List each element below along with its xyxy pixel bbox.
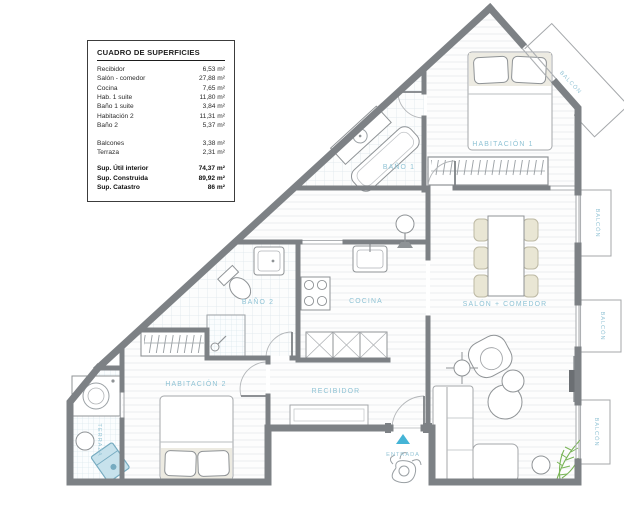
label-cocina: COCINA [349, 298, 383, 305]
label-habitacion2: HABITACIÓN 2 [165, 379, 226, 388]
wardrobe-habitacion2 [141, 331, 207, 356]
shower [207, 315, 245, 356]
console-table [290, 405, 368, 425]
balcony-label: BALCÓN [599, 311, 606, 340]
balcony-label: BALCÓN [594, 208, 601, 237]
label-terraza: TERRAZA [96, 423, 102, 456]
dining-set [474, 216, 538, 297]
table-row: Terraza2,31 m² [97, 148, 225, 157]
balcony-right-lower: BALCÓN [579, 400, 610, 464]
bed-habitacion2 [160, 396, 233, 480]
wardrobe-habitacion1 [428, 157, 548, 185]
dining-chair [523, 275, 538, 297]
bed-habitacion1 [468, 52, 552, 150]
surface-table-title: CUADRO DE SUPERFICIES [97, 48, 225, 61]
dining-chair [474, 247, 489, 269]
dining-chair [474, 275, 489, 297]
table-row: Recibidor6,53 m² [97, 65, 225, 74]
balcony-label: BALCÓN [593, 417, 600, 446]
table-row: Hab. 1 suite11,80 m² [97, 93, 225, 102]
table-row: Baño 1 suite3,84 m² [97, 102, 225, 111]
surface-table: CUADRO DE SUPERFICIES Recibidor6,53 m² S… [87, 40, 235, 202]
entrance-arrow-icon [396, 434, 410, 444]
table-row: Habitación 211,31 m² [97, 112, 225, 121]
label-habitacion1: HABITACIÓN 1 [472, 139, 533, 148]
terrace-table [76, 432, 94, 450]
label-recibidor: RECIBIDOR [312, 388, 361, 395]
side-table [532, 456, 550, 474]
balcony-right-middle: BALCÓN [579, 300, 621, 352]
table-row: Cocina7,65 m² [97, 84, 225, 93]
label-salon-comedor: SALÓN + COMEDOR [463, 299, 547, 308]
table-row-total: Sup. Catastro86 m² [97, 183, 225, 192]
label-bano2: BAÑO 2 [242, 297, 274, 306]
table-row: Balcones3,38 m² [97, 139, 225, 148]
sofa-chaise [473, 444, 518, 482]
label-bano1: BAÑO 1 [383, 162, 415, 171]
kitchen-cabinets [306, 332, 387, 358]
dining-chair [523, 247, 538, 269]
dining-table [488, 216, 524, 296]
table-row-total: Sup. Útil interior74,37 m² [97, 164, 225, 173]
table-row-total: Sup. Construida89,92 m² [97, 174, 225, 183]
entrance-label: ENTRADA [386, 452, 420, 458]
floor-plan-page: BALCÓN BALCÓN BALCÓN BALCÓN [0, 0, 624, 505]
balcony-right-upper: BALCÓN [579, 190, 611, 256]
coffee-table-small [502, 370, 524, 392]
table-row: Salón - comedor27,88 m² [97, 74, 225, 83]
dining-chair [523, 219, 538, 241]
entrance-marker: ENTRADA [386, 434, 420, 458]
dining-chair [474, 219, 489, 241]
table-row: Baño 25,37 m² [97, 121, 225, 130]
